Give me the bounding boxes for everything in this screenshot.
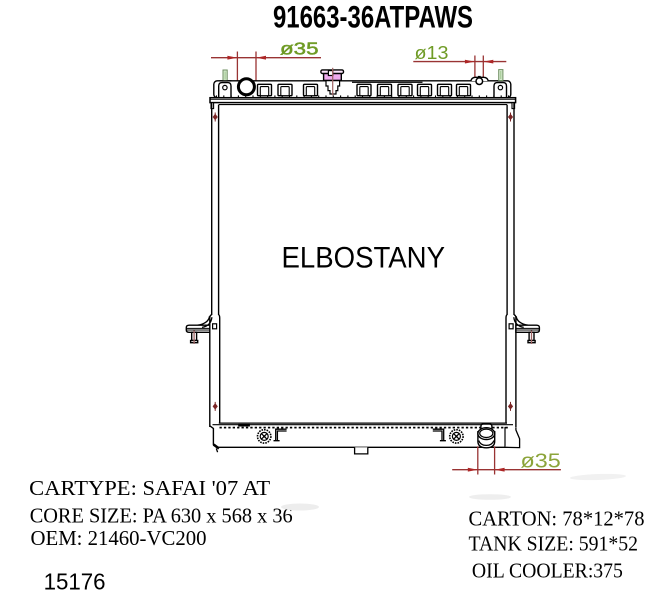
svg-text:TANK SIZE: 591*52: TANK SIZE: 591*52 (469, 532, 639, 556)
svg-text:OEM: 21460-VC200: OEM: 21460-VC200 (31, 526, 207, 550)
svg-text:15176: 15176 (44, 569, 106, 595)
svg-text:ø35: ø35 (521, 450, 561, 472)
svg-text:91663-36ATPAWS: 91663-36ATPAWS (273, 0, 473, 35)
svg-text:CORE SIZE: PA 630 x 568 x 36: CORE SIZE: PA 630 x 568 x 36 (30, 504, 293, 528)
svg-text:ELBOSTANY: ELBOSTANY (282, 242, 446, 275)
svg-text:CARTYPE: SAFAI '07 AT: CARTYPE: SAFAI '07 AT (29, 476, 270, 500)
svg-text:ø13: ø13 (415, 43, 449, 63)
svg-text:ø35: ø35 (280, 39, 319, 59)
svg-text:OIL COOLER:375: OIL COOLER:375 (472, 559, 623, 583)
svg-text:CARTON: 78*12*78: CARTON: 78*12*78 (469, 507, 645, 531)
